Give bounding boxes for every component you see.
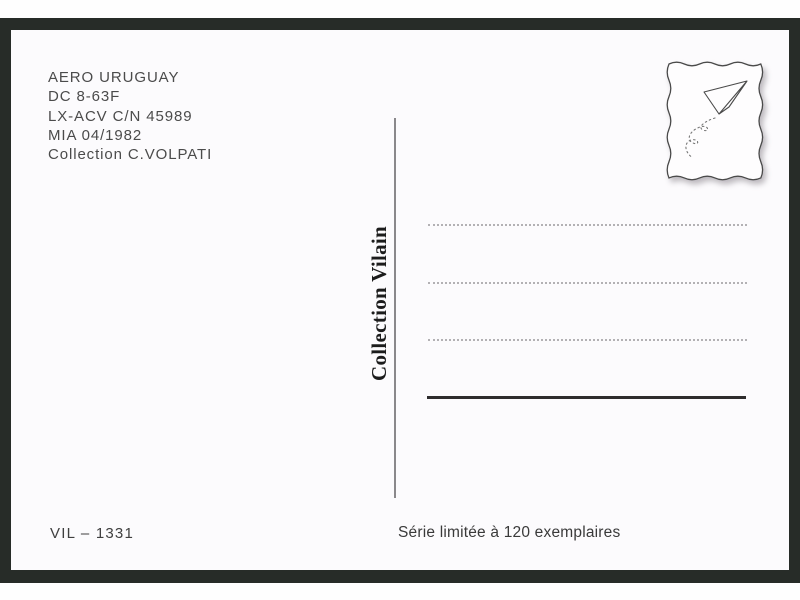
paper-airplane-icon	[663, 57, 767, 185]
address-line-3	[428, 339, 747, 341]
postcard-back: AERO URUGUAY DC 8-63F LX-ACV C/N 45989 M…	[11, 30, 789, 570]
edition-note: Série limitée à 120 exemplaires	[398, 524, 620, 542]
postcard-frame: AERO URUGUAY DC 8-63F LX-ACV C/N 45989 M…	[0, 18, 800, 583]
caption-line-registration: LX-ACV C/N 45989	[48, 107, 212, 126]
signature-line	[427, 396, 746, 399]
page-background: AERO URUGUAY DC 8-63F LX-ACV C/N 45989 M…	[0, 0, 800, 600]
caption-block: AERO URUGUAY DC 8-63F LX-ACV C/N 45989 M…	[48, 68, 212, 164]
catalog-number: VIL – 1331	[50, 525, 134, 542]
caption-line-location-date: MIA 04/1982	[48, 126, 212, 145]
caption-line-aircraft: DC 8-63F	[48, 87, 212, 106]
stamp-box	[663, 57, 767, 185]
address-line-1	[428, 224, 747, 226]
spine-label: Collection Vilain	[367, 231, 393, 381]
caption-line-collection: Collection C.VOLPATI	[48, 145, 212, 164]
vertical-divider	[394, 118, 396, 498]
caption-line-airline: AERO URUGUAY	[48, 68, 212, 87]
address-line-2	[428, 282, 747, 284]
